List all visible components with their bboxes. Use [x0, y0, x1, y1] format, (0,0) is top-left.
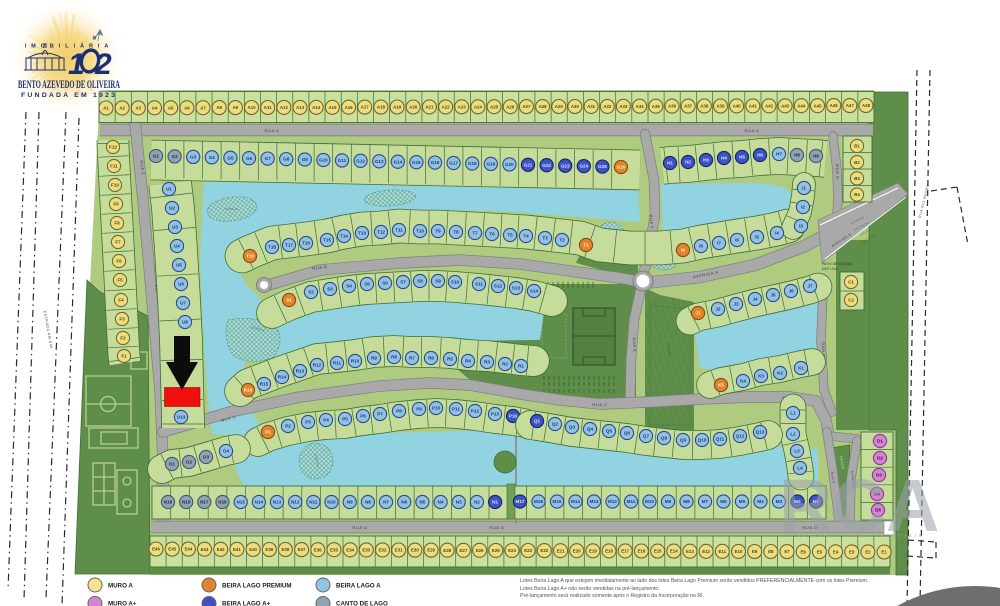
svg-text:T13: T13 [358, 231, 366, 236]
svg-text:E20: E20 [573, 548, 581, 553]
svg-text:A9: A9 [233, 105, 239, 110]
svg-text:O1: O1 [169, 462, 176, 467]
svg-text:M13: M13 [590, 499, 599, 504]
svg-text:S11: S11 [475, 282, 483, 287]
svg-text:A40: A40 [733, 104, 742, 109]
svg-text:K4: K4 [740, 379, 746, 384]
svg-text:D1: D1 [877, 439, 883, 444]
svg-text:K2: K2 [777, 371, 783, 376]
svg-text:O2: O2 [186, 460, 193, 465]
svg-text:E27: E27 [459, 548, 467, 553]
svg-text:I3: I3 [799, 224, 803, 229]
svg-text:R14: R14 [278, 375, 287, 380]
svg-text:T16: T16 [302, 241, 310, 246]
svg-text:A45: A45 [813, 103, 822, 108]
svg-text:S10: S10 [451, 280, 460, 285]
svg-text:A38: A38 [700, 104, 709, 109]
svg-text:F2: F2 [120, 336, 126, 341]
svg-text:E43: E43 [201, 547, 209, 552]
svg-text:P13: P13 [491, 412, 500, 417]
svg-text:DEP. LIXO: DEP. LIXO [822, 267, 839, 271]
svg-text:B4: B4 [854, 192, 860, 197]
svg-text:Lotes Beira Lago A+ não serão: Lotes Beira Lago A+ não serão vendidas n… [520, 586, 660, 592]
svg-text:S12: S12 [494, 284, 503, 289]
svg-text:E3: E3 [849, 550, 855, 555]
svg-text:E31: E31 [395, 548, 403, 553]
svg-text:H1: H1 [667, 161, 673, 166]
svg-text:E40: E40 [249, 547, 257, 552]
svg-text:F11: F11 [110, 164, 118, 169]
svg-text:E38: E38 [281, 547, 289, 552]
svg-text:D2: D2 [877, 456, 883, 461]
svg-text:F1: F1 [121, 354, 127, 359]
svg-text:G12: G12 [356, 158, 365, 163]
svg-text:U13: U13 [177, 415, 186, 420]
svg-text:G20: G20 [505, 162, 514, 167]
svg-text:S6: S6 [382, 281, 388, 286]
svg-text:A20: A20 [409, 105, 418, 110]
svg-text:E28: E28 [443, 548, 451, 553]
svg-text:A44: A44 [797, 103, 806, 108]
svg-text:A10: A10 [247, 105, 256, 110]
svg-text:T12: T12 [377, 230, 385, 235]
svg-text:E45: E45 [168, 547, 176, 552]
svg-text:J1: J1 [695, 311, 701, 316]
svg-text:F6: F6 [116, 259, 122, 264]
svg-text:MURO A+: MURO A+ [108, 601, 137, 606]
svg-text:E14: E14 [670, 549, 678, 554]
svg-text:N16: N16 [218, 500, 227, 505]
svg-text:M17: M17 [516, 499, 525, 504]
svg-text:C1: C1 [848, 280, 854, 285]
svg-text:E23: E23 [524, 548, 532, 553]
svg-text:E9: E9 [752, 549, 758, 554]
svg-text:J4: J4 [752, 297, 758, 302]
svg-text:E15: E15 [654, 549, 662, 554]
svg-text:T19: T19 [246, 254, 254, 259]
svg-text:E35: E35 [330, 547, 338, 552]
svg-text:E46: E46 [152, 547, 160, 552]
svg-text:N8: N8 [365, 500, 371, 505]
svg-text:H4: H4 [721, 156, 727, 161]
svg-text:R3: R3 [484, 360, 490, 365]
svg-text:E21: E21 [557, 548, 565, 553]
svg-text:I9: I9 [681, 248, 685, 253]
svg-text:S9: S9 [435, 279, 441, 284]
svg-text:J7: J7 [807, 284, 813, 289]
svg-text:A22: A22 [442, 105, 451, 110]
svg-text:T6: T6 [489, 232, 495, 237]
svg-text:M8: M8 [683, 499, 690, 504]
svg-text:U8: U8 [182, 320, 188, 325]
svg-text:B1: B1 [854, 144, 860, 149]
svg-text:R13: R13 [296, 369, 305, 374]
svg-text:E36: E36 [314, 547, 322, 552]
svg-text:A7: A7 [200, 105, 206, 110]
svg-text:T3: T3 [542, 236, 548, 241]
svg-text:E7: E7 [784, 549, 790, 554]
svg-text:P16: P16 [509, 414, 518, 419]
svg-text:G19: G19 [486, 162, 495, 167]
svg-text:R9: R9 [371, 356, 377, 361]
svg-text:Q3: Q3 [569, 425, 576, 430]
svg-text:BEIRA LAGO A: BEIRA LAGO A [336, 583, 381, 590]
svg-text:N14: N14 [255, 500, 264, 505]
svg-text:A19: A19 [393, 105, 402, 110]
svg-text:P3: P3 [305, 420, 311, 425]
svg-text:T1: T1 [583, 243, 589, 248]
svg-text:T2: T2 [559, 238, 565, 243]
svg-text:A23: A23 [458, 104, 467, 109]
svg-text:R6: R6 [428, 356, 434, 361]
svg-text:A27: A27 [522, 104, 531, 109]
svg-text:H5: H5 [739, 155, 745, 160]
svg-text:L3: L3 [794, 449, 800, 454]
svg-text:N: N [93, 35, 96, 40]
svg-text:RUA C: RUA C [592, 402, 607, 407]
svg-text:A48: A48 [862, 103, 871, 108]
svg-text:F5: F5 [117, 278, 123, 283]
svg-text:A8: A8 [216, 105, 222, 110]
svg-text:R8: R8 [391, 355, 397, 360]
svg-text:I7: I7 [717, 241, 721, 246]
svg-text:K5: K5 [718, 383, 724, 388]
svg-text:A15: A15 [328, 105, 337, 110]
svg-text:G25: G25 [598, 164, 607, 169]
svg-text:U3: U3 [172, 225, 178, 230]
svg-text:E8: E8 [768, 549, 774, 554]
svg-text:E18: E18 [605, 549, 613, 554]
svg-text:E24: E24 [508, 548, 516, 553]
svg-text:Q11: Q11 [716, 437, 725, 442]
svg-text:A3: A3 [135, 106, 141, 111]
svg-text:G24: G24 [579, 164, 588, 169]
svg-text:O4: O4 [223, 449, 230, 454]
svg-text:M12: M12 [608, 499, 617, 504]
svg-text:N11: N11 [309, 500, 318, 505]
svg-text:R12: R12 [313, 363, 322, 368]
svg-text:G2: G2 [172, 154, 179, 159]
svg-text:T5: T5 [507, 233, 513, 238]
svg-text:A1: A1 [103, 106, 109, 111]
svg-text:A30: A30 [571, 104, 580, 109]
svg-text:H9: H9 [813, 154, 819, 159]
svg-text:E39: E39 [265, 547, 273, 552]
svg-text:RUA G: RUA G [835, 164, 841, 180]
svg-text:S8: S8 [417, 279, 423, 284]
svg-text:S4: S4 [346, 284, 352, 289]
svg-text:A28: A28 [539, 104, 548, 109]
svg-text:R7: R7 [409, 356, 415, 361]
svg-text:A47: A47 [846, 103, 855, 108]
svg-text:G7: G7 [265, 156, 272, 161]
svg-text:G21: G21 [524, 162, 533, 167]
svg-text:A4: A4 [152, 105, 158, 110]
svg-text:A39: A39 [716, 104, 725, 109]
svg-text:G9: G9 [302, 157, 309, 162]
svg-text:Q4: Q4 [587, 427, 594, 432]
svg-text:P5: P5 [342, 417, 348, 422]
svg-text:A2: A2 [119, 106, 125, 111]
svg-text:H3: H3 [703, 158, 709, 163]
svg-text:M16: M16 [534, 499, 543, 504]
svg-text:E16: E16 [637, 549, 645, 554]
svg-text:E34: E34 [346, 547, 354, 552]
svg-text:BEIRA LAGO PREMIUM: BEIRA LAGO PREMIUM [222, 583, 292, 590]
svg-text:J5: J5 [770, 293, 776, 298]
svg-text:M5: M5 [739, 499, 746, 504]
svg-text:A5: A5 [168, 105, 174, 110]
svg-text:I2: I2 [801, 205, 805, 210]
svg-text:U7: U7 [180, 301, 186, 306]
svg-text:G23: G23 [561, 163, 570, 168]
svg-text:E26: E26 [476, 548, 484, 553]
svg-text:A21: A21 [425, 105, 434, 110]
svg-text:P1: P1 [265, 430, 271, 435]
svg-text:A25: A25 [490, 104, 499, 109]
svg-text:RUA E: RUA E [631, 337, 637, 352]
svg-text:I5: I5 [755, 235, 759, 240]
svg-text:RUA D: RUA D [489, 525, 504, 530]
svg-text:T8: T8 [453, 230, 459, 235]
svg-text:PATIO DE ESTANQ.: PATIO DE ESTANQ. [822, 262, 853, 266]
svg-text:G5: G5 [227, 155, 234, 160]
svg-text:REDE CORRETORA DE IMOVEIS: REDE CORRETORA DE IMOVEIS [788, 533, 924, 538]
svg-text:S7: S7 [400, 280, 406, 285]
svg-text:P12: P12 [471, 409, 480, 414]
svg-text:O3: O3 [203, 455, 210, 460]
svg-text:F12: F12 [109, 145, 117, 150]
svg-text:E25: E25 [492, 548, 500, 553]
svg-text:A18: A18 [377, 105, 386, 110]
svg-text:M6: M6 [720, 499, 727, 504]
svg-text:A34: A34 [636, 104, 645, 109]
svg-text:M4: M4 [757, 499, 764, 504]
svg-text:A11: A11 [264, 105, 272, 110]
svg-text:M9: M9 [665, 499, 672, 504]
svg-text:Pré-lançamento será realizado: Pré-lançamento será realizado somente ap… [520, 593, 704, 599]
svg-text:N6: N6 [401, 500, 407, 505]
svg-text:P11: P11 [452, 407, 460, 412]
svg-text:E1: E1 [881, 550, 887, 555]
svg-text:E12: E12 [702, 549, 710, 554]
svg-text:BENTO AZEVEDO DE OLIVEIRA: BENTO AZEVEDO DE OLIVEIRA [18, 77, 120, 91]
svg-text:R4: R4 [465, 359, 471, 364]
svg-text:T15: T15 [323, 238, 331, 243]
svg-text:Q5: Q5 [606, 429, 613, 434]
svg-text:J6: J6 [788, 289, 794, 294]
svg-text:T7: T7 [472, 231, 478, 236]
svg-text:A14: A14 [312, 105, 321, 110]
svg-text:G17: G17 [449, 161, 458, 166]
svg-text:P7: P7 [377, 412, 383, 417]
svg-text:G16: G16 [431, 160, 440, 165]
svg-text:M11: M11 [627, 499, 636, 504]
svg-text:E32: E32 [379, 548, 387, 553]
svg-text:R1: R1 [518, 364, 524, 369]
svg-text:RUA D: RUA D [352, 525, 367, 530]
svg-text:A16: A16 [345, 105, 354, 110]
svg-text:E19: E19 [589, 548, 597, 553]
svg-text:P8: P8 [396, 409, 402, 414]
svg-text:E11: E11 [719, 549, 727, 554]
svg-text:J3: J3 [733, 302, 739, 307]
svg-text:A6: A6 [184, 105, 190, 110]
svg-text:T11: T11 [395, 228, 403, 233]
svg-text:A29: A29 [555, 104, 564, 109]
svg-text:Q9: Q9 [680, 438, 687, 443]
svg-text:P2: P2 [285, 424, 291, 429]
svg-text:E17: E17 [621, 549, 629, 554]
svg-text:FUNDADA EM 1923: FUNDADA EM 1923 [21, 92, 117, 99]
svg-text:A32: A32 [603, 104, 612, 109]
svg-text:P6: P6 [360, 414, 366, 419]
svg-text:Q13: Q13 [756, 430, 765, 435]
svg-text:N12: N12 [291, 500, 300, 505]
svg-text:U4: U4 [174, 244, 180, 249]
svg-text:A42: A42 [765, 103, 774, 108]
svg-text:G13: G13 [375, 159, 384, 164]
svg-text:G10: G10 [319, 158, 328, 163]
svg-text:B3: B3 [854, 176, 860, 181]
svg-text:G15: G15 [412, 160, 421, 165]
svg-text:N13: N13 [273, 500, 282, 505]
svg-text:T17: T17 [285, 243, 293, 248]
svg-text:P9: P9 [416, 407, 422, 412]
svg-text:M10: M10 [645, 499, 654, 504]
svg-text:G8: G8 [283, 157, 290, 162]
svg-text:R16: R16 [244, 388, 253, 393]
svg-text:S5: S5 [364, 282, 370, 287]
svg-text:N18: N18 [182, 500, 191, 505]
svg-text:N4: N4 [438, 500, 444, 505]
svg-text:N19: N19 [164, 500, 173, 505]
svg-text:P10: P10 [432, 406, 441, 411]
svg-text:B2: B2 [854, 160, 860, 165]
svg-text:K3: K3 [758, 374, 764, 379]
svg-text:E10: E10 [735, 549, 743, 554]
svg-text:U6: U6 [178, 282, 184, 287]
svg-text:G26: G26 [617, 165, 626, 170]
svg-text:BEIRA LAGO A+: BEIRA LAGO A+ [222, 601, 271, 606]
svg-text:P4: P4 [323, 418, 329, 423]
svg-text:I8: I8 [699, 244, 703, 249]
svg-text:A12: A12 [280, 105, 289, 110]
svg-text:CANTO DE LAGO: CANTO DE LAGO [336, 601, 388, 606]
svg-text:E13: E13 [686, 549, 694, 554]
svg-text:A46: A46 [830, 103, 839, 108]
svg-text:A24: A24 [474, 104, 483, 109]
svg-text:Q10: Q10 [698, 438, 707, 443]
svg-text:N3: N3 [456, 500, 462, 505]
svg-text:A37: A37 [684, 104, 693, 109]
svg-text:T10: T10 [416, 229, 424, 234]
svg-text:A31: A31 [587, 104, 596, 109]
svg-text:F10: F10 [111, 183, 119, 188]
svg-text:N15: N15 [236, 500, 245, 505]
svg-text:I1: I1 [802, 186, 806, 191]
svg-text:A13: A13 [296, 105, 305, 110]
svg-text:E41: E41 [233, 547, 241, 552]
svg-text:N9: N9 [347, 500, 353, 505]
svg-text:H7: H7 [776, 152, 782, 157]
svg-text:S13: S13 [512, 286, 521, 291]
svg-text:U1: U1 [166, 187, 172, 192]
svg-text:A26: A26 [506, 104, 515, 109]
svg-text:E44: E44 [184, 547, 192, 552]
svg-text:T4: T4 [523, 234, 529, 239]
svg-text:E30: E30 [411, 548, 419, 553]
svg-text:R5: R5 [447, 357, 453, 362]
svg-text:R11: R11 [333, 361, 342, 366]
svg-text:F9: F9 [113, 202, 119, 207]
svg-text:T9: T9 [435, 229, 441, 234]
svg-text:E5: E5 [817, 549, 823, 554]
svg-text:R10: R10 [351, 359, 360, 364]
svg-text:Q1: Q1 [534, 419, 541, 424]
svg-text:U2: U2 [169, 206, 175, 211]
svg-text:R2: R2 [502, 362, 508, 367]
svg-text:S14: S14 [530, 289, 539, 294]
svg-text:MURO A: MURO A [108, 583, 133, 590]
svg-text:F3: F3 [119, 317, 125, 322]
svg-text:N1: N1 [492, 500, 498, 505]
svg-text:S2: S2 [308, 290, 314, 295]
svg-text:L1: L1 [790, 411, 796, 416]
svg-text:E6: E6 [801, 549, 807, 554]
svg-text:G14: G14 [393, 159, 402, 164]
svg-text:E33: E33 [362, 548, 370, 553]
svg-text:M15: M15 [553, 499, 562, 504]
svg-text:G1: G1 [153, 154, 160, 159]
svg-text:E29: E29 [427, 548, 435, 553]
svg-text:G11: G11 [338, 158, 347, 163]
svg-text:J2: J2 [715, 307, 721, 312]
svg-text:N5: N5 [419, 500, 425, 505]
svg-text:I6: I6 [735, 238, 739, 243]
svg-text:Q2: Q2 [552, 422, 559, 427]
svg-text:Lotes Beira Lago A que estejam: Lotes Beira Lago A que estejam imediatam… [520, 578, 868, 584]
svg-text:E2: E2 [865, 550, 871, 555]
svg-text:G6: G6 [246, 156, 253, 161]
svg-text:G22: G22 [542, 163, 551, 168]
svg-text:Q8: Q8 [661, 436, 668, 441]
svg-text:G3: G3 [190, 155, 197, 160]
svg-text:G18: G18 [468, 161, 477, 166]
svg-text:N7: N7 [383, 500, 389, 505]
svg-text:Q12: Q12 [736, 434, 745, 439]
svg-text:S1: S1 [286, 298, 292, 303]
svg-text:L2: L2 [790, 432, 796, 437]
svg-text:E42: E42 [217, 547, 225, 552]
svg-text:A33: A33 [619, 104, 628, 109]
svg-text:A17: A17 [361, 105, 370, 110]
svg-text:JUNCAL: JUNCAL [224, 207, 239, 211]
svg-text:H6: H6 [757, 153, 763, 158]
svg-text:H8: H8 [794, 153, 800, 158]
svg-text:A43: A43 [781, 103, 790, 108]
svg-text:Q6: Q6 [624, 431, 631, 436]
svg-text:T18: T18 [268, 245, 276, 250]
svg-text:Q7: Q7 [643, 434, 650, 439]
svg-text:E4: E4 [833, 549, 839, 554]
svg-text:S3: S3 [327, 287, 333, 292]
svg-text:F4: F4 [118, 298, 124, 303]
svg-text:A35: A35 [652, 104, 661, 109]
svg-text:F7: F7 [115, 240, 121, 245]
svg-text:RUA A: RUA A [265, 128, 280, 133]
svg-text:H2: H2 [685, 160, 691, 165]
